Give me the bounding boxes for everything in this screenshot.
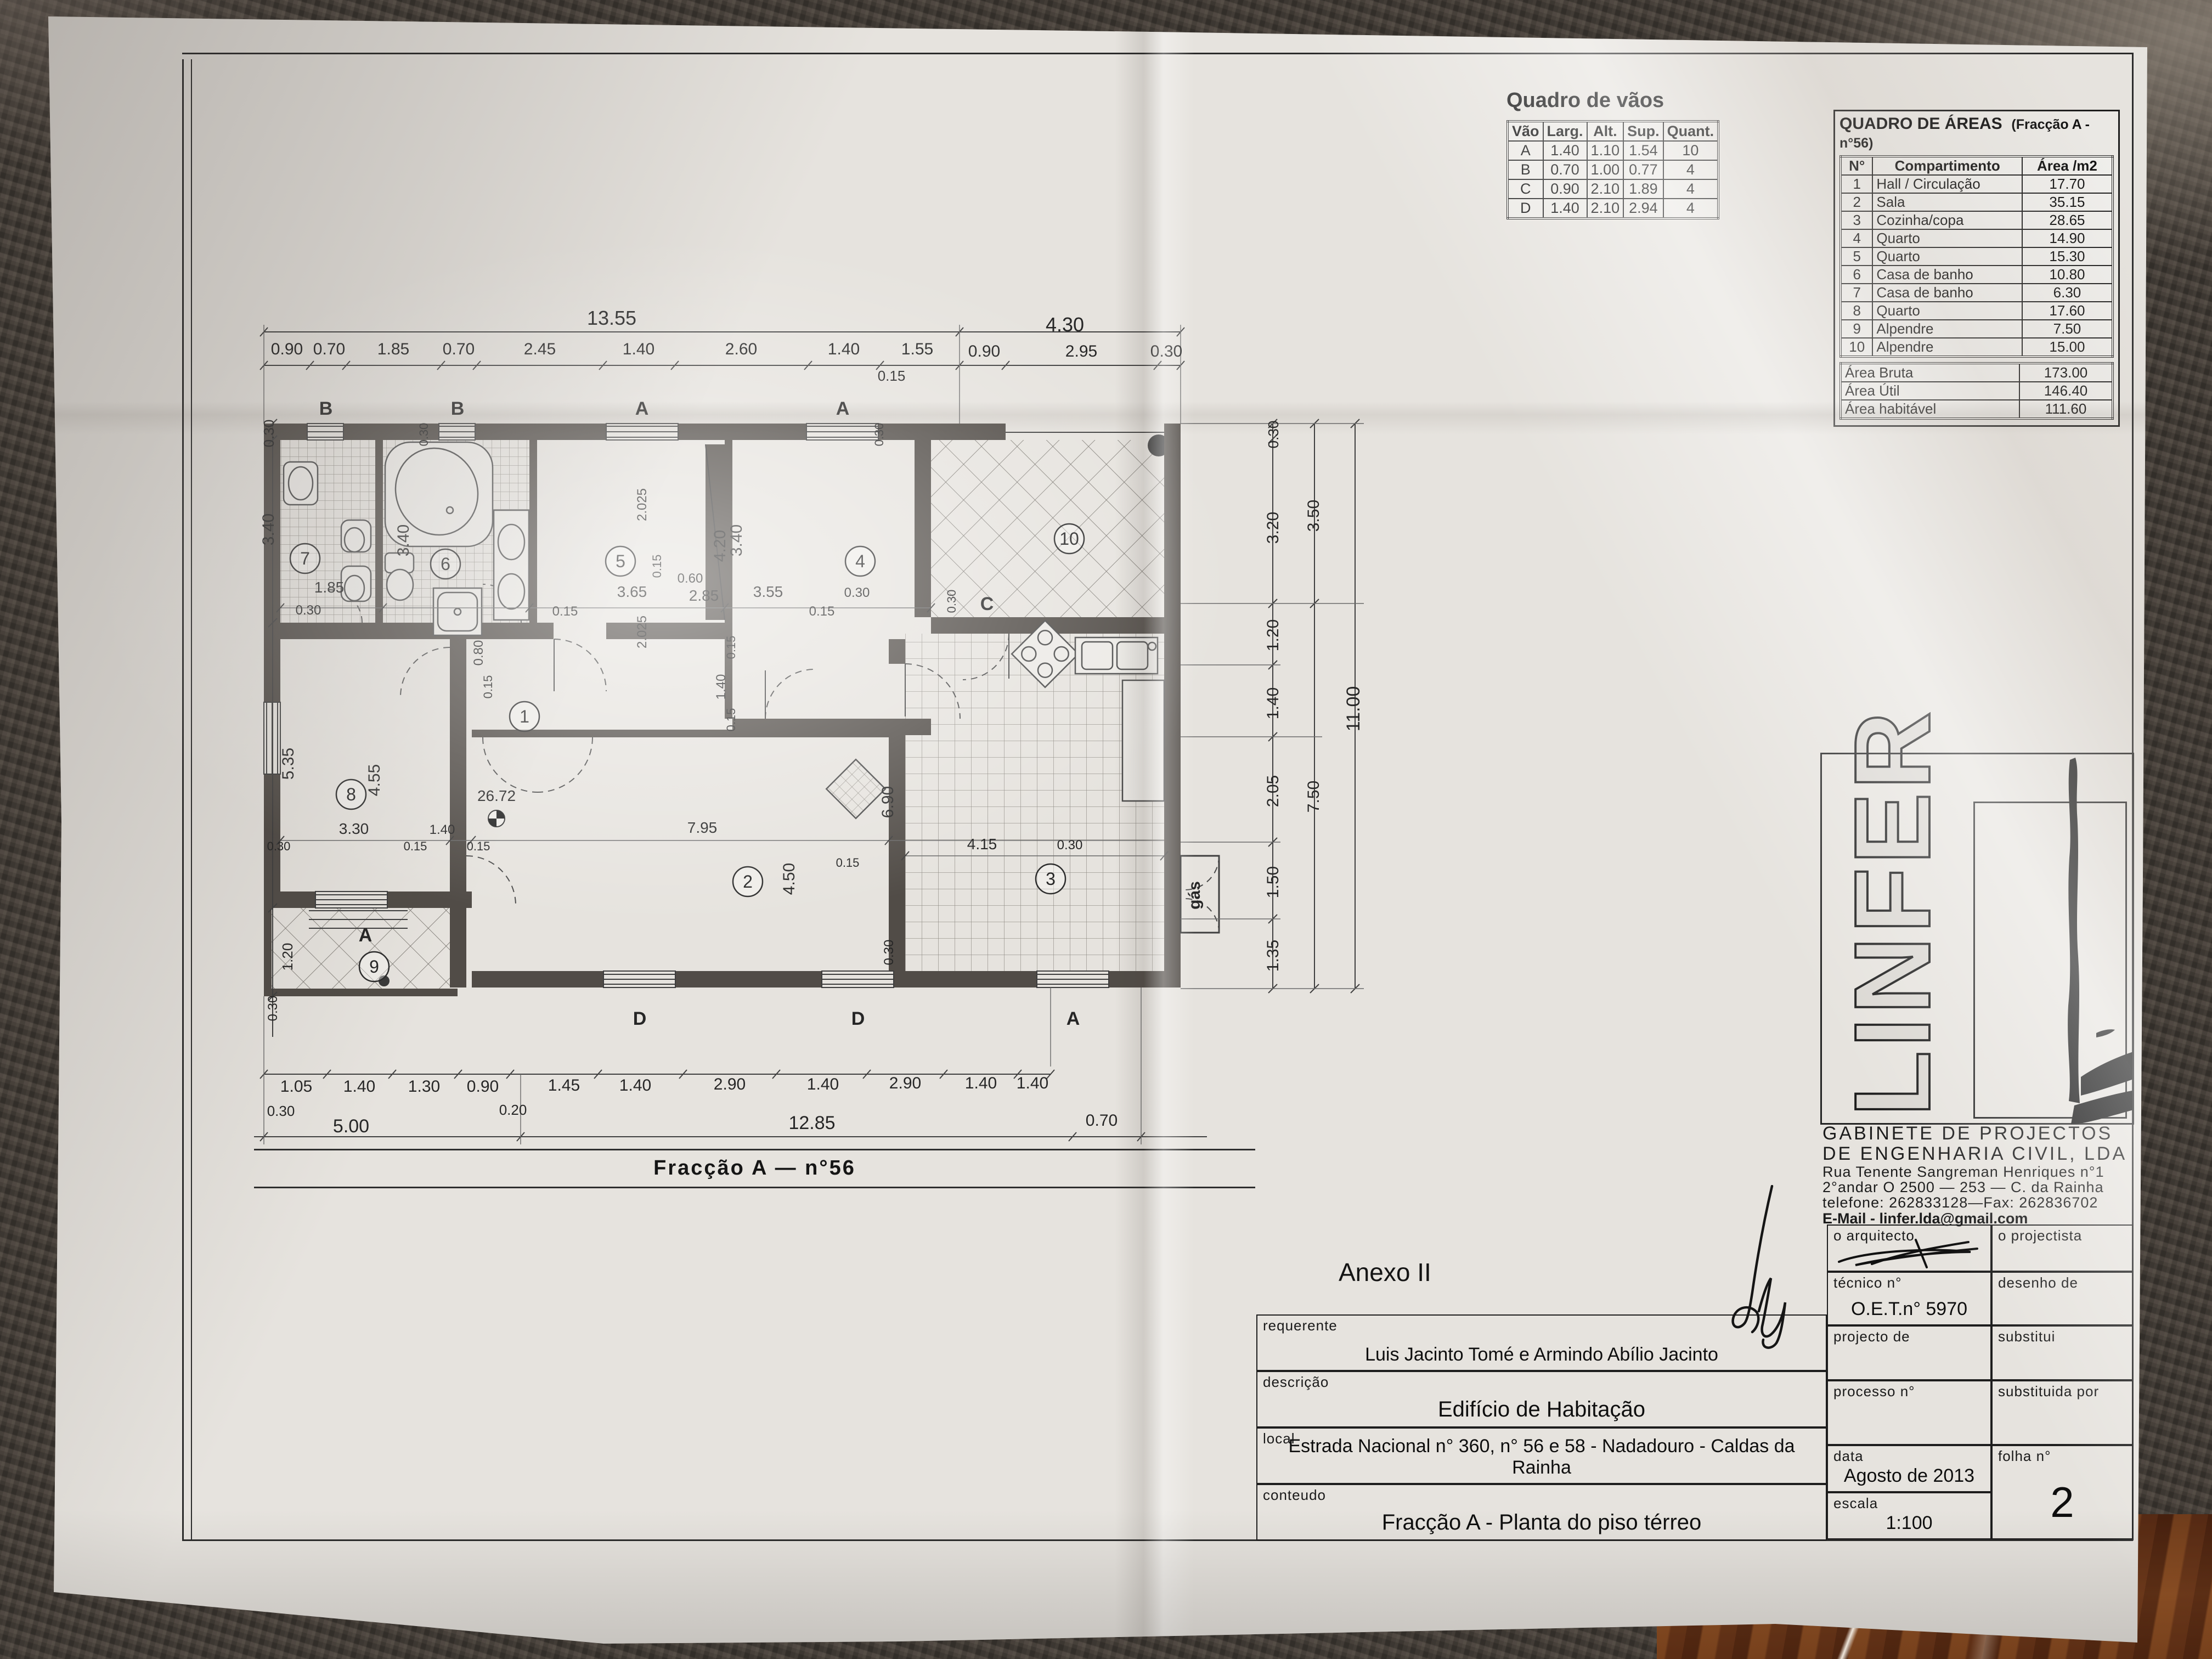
brush-l-icon: [1932, 748, 2132, 1132]
svg-text:0.70: 0.70: [443, 340, 475, 358]
svg-text:D: D: [851, 1008, 865, 1029]
svg-text:1.45: 1.45: [548, 1076, 580, 1094]
svg-text:10: 10: [1059, 529, 1079, 549]
svg-text:0.15: 0.15: [724, 708, 738, 732]
cell-projectista: o projectista: [1991, 1224, 2133, 1272]
svg-text:7.50: 7.50: [1305, 781, 1323, 812]
tb-row-local: localEstrada Nacional n° 360, n° 56 e 58…: [1256, 1427, 1827, 1484]
svg-text:1.30: 1.30: [408, 1077, 440, 1096]
areas-table-grid: N°CompartimentoÁrea /m21Hall / Circulaçã…: [1839, 155, 2114, 358]
cell-data: data Agosto de 2013: [1827, 1445, 1991, 1492]
porch9-hatch: [272, 908, 450, 996]
svg-text:1.40: 1.40: [623, 340, 654, 358]
svg-text:3.65: 3.65: [617, 583, 647, 600]
svg-text:5.35: 5.35: [279, 748, 297, 780]
areas-table: QUADRO DE ÁREAS (Fracção A - n°56) N°Com…: [1833, 110, 2120, 427]
svg-text:2: 2: [743, 872, 753, 891]
svg-text:0.20: 0.20: [499, 1102, 527, 1118]
svg-text:3.50: 3.50: [1305, 500, 1323, 532]
svg-text:1.40: 1.40: [430, 822, 455, 837]
cell-desenho: desenho de: [1991, 1272, 2133, 1325]
plan-caption: Fracção A — n°56: [254, 1149, 1255, 1188]
svg-text:B: B: [451, 398, 465, 419]
frame-top: [182, 53, 2133, 54]
svg-text:1.20: 1.20: [1264, 619, 1282, 651]
svg-text:2.90: 2.90: [889, 1074, 921, 1092]
tecnico-label: técnico n°: [1833, 1274, 1901, 1291]
desenho-label: desenho de: [1998, 1274, 2078, 1291]
arquitecto-signature: [1833, 1235, 1987, 1272]
svg-text:0.30: 0.30: [945, 590, 958, 613]
svg-text:5.00: 5.00: [333, 1116, 369, 1137]
svg-text:0.30: 0.30: [882, 940, 896, 966]
svg-text:0.15: 0.15: [650, 555, 664, 578]
svg-text:0.30: 0.30: [872, 423, 886, 447]
svg-text:B: B: [319, 398, 333, 419]
projectista-label: o projectista: [1998, 1227, 2082, 1244]
svg-text:4.55: 4.55: [365, 764, 383, 796]
porch10-hatch: [931, 440, 1164, 617]
svg-text:3.55: 3.55: [753, 583, 783, 600]
svg-text:3.30: 3.30: [339, 820, 369, 837]
cell-tecnico: técnico n° O.E.T.n° 5970: [1827, 1272, 1991, 1325]
svg-text:4.50: 4.50: [780, 863, 798, 895]
svg-text:0.30: 0.30: [296, 603, 321, 618]
escala-label: escala: [1833, 1495, 1878, 1512]
svg-text:A: A: [1066, 1008, 1080, 1029]
substitui-label: substitui: [1998, 1328, 2055, 1345]
svg-text:0.90: 0.90: [271, 340, 303, 358]
svg-text:1.40: 1.40: [807, 1075, 839, 1093]
svg-text:1.40: 1.40: [965, 1074, 997, 1092]
svg-text:3: 3: [1046, 869, 1056, 889]
tecnico-value: O.E.T.n° 5970: [1828, 1299, 1990, 1320]
svg-text:0.15: 0.15: [809, 604, 835, 619]
svg-text:1.85: 1.85: [314, 579, 345, 596]
svg-text:0.15: 0.15: [404, 839, 427, 853]
svg-text:0.60: 0.60: [678, 571, 703, 586]
svg-text:0.90: 0.90: [968, 342, 1000, 360]
svg-text:0.15: 0.15: [724, 636, 738, 659]
openings-table: Quadro de vãos VãoLarg.Alt.Sup.Quant.A1.…: [1506, 89, 1769, 219]
svg-text:1.40: 1.40: [1017, 1074, 1048, 1092]
openings-table-title: Quadro de vãos: [1506, 89, 1769, 112]
floor-plan: 13.554.300.900.701.850.702.451.402.601.4…: [236, 296, 1399, 1218]
areas-table-title: QUADRO DE ÁREAS: [1839, 115, 2002, 133]
svg-text:0.90: 0.90: [467, 1077, 499, 1096]
tb-row-conteudo: conteudoFracção A - Planta do piso térre…: [1256, 1484, 1827, 1541]
company-info: GABINETE DE PROJECTOS DE ENGENHARIA CIVI…: [1822, 1124, 2131, 1227]
svg-text:C: C: [980, 594, 994, 614]
svg-text:0.30: 0.30: [1150, 342, 1182, 360]
svg-text:4.20: 4.20: [711, 530, 729, 562]
openings-table-grid: VãoLarg.Alt.Sup.Quant.A1.401.101.5410B0.…: [1506, 120, 1719, 219]
svg-text:0.15: 0.15: [481, 675, 495, 699]
svg-text:3.40: 3.40: [259, 513, 278, 545]
svg-text:0.80: 0.80: [471, 640, 486, 666]
svg-text:1.40: 1.40: [828, 340, 860, 358]
company-address1: Rua Tenente Sangreman Henriques n°1: [1822, 1164, 2131, 1180]
svg-text:0.30: 0.30: [261, 420, 277, 448]
svg-text:1: 1: [520, 707, 529, 726]
folha-label: folha n°: [1998, 1448, 2051, 1465]
svg-text:2.025: 2.025: [635, 488, 650, 521]
cell-substituida: substituida por: [1991, 1380, 2133, 1445]
data-value: Agosto de 2013: [1828, 1465, 1990, 1487]
svg-text:9: 9: [369, 957, 379, 977]
svg-text:A: A: [836, 398, 850, 419]
svg-text:1.40: 1.40: [343, 1077, 375, 1096]
data-label: data: [1833, 1448, 1864, 1465]
svg-text:2.90: 2.90: [714, 1075, 746, 1093]
svg-text:2.45: 2.45: [524, 340, 556, 358]
company-address2: 2°andar O 2500 — 253 — C. da Rainha: [1822, 1180, 2131, 1195]
svg-text:26.72: 26.72: [477, 787, 516, 804]
svg-text:3.40: 3.40: [727, 524, 746, 556]
processo-label: processo n°: [1833, 1383, 1915, 1400]
company-line1: GABINETE DE PROJECTOS: [1822, 1124, 2131, 1144]
svg-text:3.20: 3.20: [1264, 512, 1282, 544]
svg-text:0.30: 0.30: [1265, 421, 1282, 449]
svg-text:gás: gás: [1186, 881, 1204, 910]
svg-text:2.025: 2.025: [635, 616, 650, 648]
svg-text:7: 7: [300, 549, 310, 568]
svg-text:11.00: 11.00: [1343, 686, 1364, 732]
cell-folha: folha n° 2: [1991, 1445, 2133, 1539]
company-logo-block: LINFER: [1820, 753, 2134, 1125]
svg-text:0.30: 0.30: [267, 839, 291, 853]
svg-text:1.40: 1.40: [714, 674, 729, 700]
svg-text:12.85: 12.85: [788, 1113, 835, 1133]
svg-text:0.30: 0.30: [844, 585, 870, 600]
svg-text:1.50: 1.50: [1264, 866, 1282, 898]
svg-text:4.30: 4.30: [1046, 313, 1084, 336]
svg-text:5: 5: [616, 551, 625, 571]
svg-text:0.70: 0.70: [313, 340, 345, 358]
company-line2: DE ENGENHARIA CIVIL, LDA: [1822, 1144, 2131, 1164]
projecto-label: projecto de: [1833, 1328, 1910, 1345]
cell-projecto: projecto de: [1827, 1325, 1991, 1380]
svg-text:6: 6: [441, 554, 450, 574]
svg-text:A: A: [635, 398, 649, 419]
cell-substitui: substitui: [1991, 1325, 2133, 1380]
svg-text:1.20: 1.20: [279, 943, 296, 971]
svg-text:1.40: 1.40: [1264, 687, 1282, 719]
areas-totals-grid: Área Bruta173.00Área Útil146.40Área habi…: [1839, 362, 2114, 420]
svg-text:3.40: 3.40: [394, 524, 413, 556]
handwritten-signature: [1706, 1185, 1827, 1350]
frame-bottom: [182, 1539, 2133, 1541]
frame-left: [182, 59, 184, 1541]
svg-text:4.15: 4.15: [967, 836, 997, 853]
svg-text:0.70: 0.70: [1086, 1111, 1118, 1130]
paper-sheet: 13.554.300.900.701.850.702.451.402.601.4…: [0, 0, 2212, 1659]
svg-text:7.95: 7.95: [687, 819, 718, 836]
svg-text:0.30: 0.30: [1057, 838, 1083, 853]
svg-text:2.85: 2.85: [689, 587, 719, 604]
svg-text:4: 4: [855, 551, 865, 571]
svg-text:0.15: 0.15: [467, 839, 490, 853]
cell-processo: processo n°: [1827, 1380, 1991, 1445]
svg-text:D: D: [633, 1008, 647, 1029]
svg-text:2.95: 2.95: [1065, 342, 1097, 360]
svg-text:8: 8: [346, 785, 356, 804]
svg-text:13.55: 13.55: [587, 307, 636, 329]
folha-value: 2: [1993, 1477, 2132, 1527]
substituida-label: substituida por: [1998, 1383, 2099, 1400]
photo-of-floor-plan: 13.554.300.900.701.850.702.451.402.601.4…: [0, 0, 2212, 1659]
cell-arquitecto: o arquitecto: [1827, 1224, 1991, 1272]
cell-escala: escala 1:100: [1827, 1492, 1991, 1539]
svg-text:0.30: 0.30: [266, 996, 280, 1022]
tb-row-descrição: descriçãoEdifício de Habitação: [1256, 1371, 1827, 1427]
svg-text:2.60: 2.60: [725, 340, 757, 358]
svg-text:1.55: 1.55: [901, 340, 933, 358]
svg-text:1.40: 1.40: [619, 1076, 651, 1094]
svg-text:A: A: [359, 925, 373, 946]
svg-text:1.35: 1.35: [1264, 940, 1282, 972]
svg-text:0.15: 0.15: [878, 368, 906, 384]
svg-text:0.30: 0.30: [267, 1103, 295, 1119]
svg-text:0.15: 0.15: [552, 604, 578, 619]
company-phone: telefone: 262833128—Fax: 262836702: [1822, 1195, 2131, 1210]
svg-text:1.05: 1.05: [280, 1077, 312, 1096]
svg-text:0.15: 0.15: [836, 856, 860, 870]
svg-text:0.30: 0.30: [417, 423, 431, 447]
svg-text:1.85: 1.85: [377, 340, 409, 358]
annex-label: Anexo II: [1339, 1257, 1431, 1287]
escala-value: 1:100: [1828, 1513, 1990, 1534]
svg-text:2.05: 2.05: [1264, 775, 1282, 807]
frame-left-inner: [191, 59, 192, 1541]
svg-text:6.90: 6.90: [879, 786, 897, 818]
